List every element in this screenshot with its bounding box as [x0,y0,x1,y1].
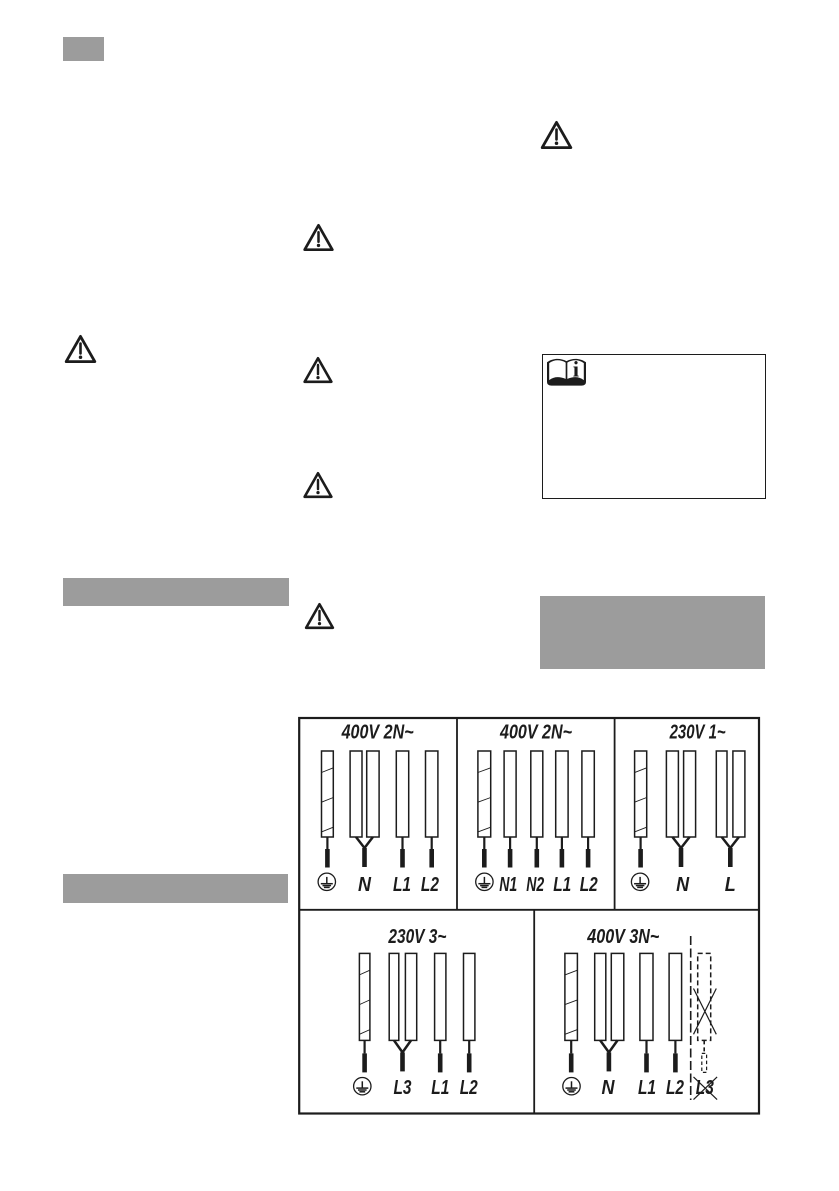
svg-text:N2: N2 [526,874,544,896]
svg-text:L: L [725,874,736,896]
svg-text:400V 2N~: 400V 2N~ [499,721,572,743]
svg-text:N: N [358,874,371,896]
svg-text:230V 3~: 230V 3~ [388,926,447,948]
svg-text:L3: L3 [394,1077,412,1099]
svg-text:L1: L1 [553,874,571,896]
svg-text:L2: L2 [580,874,598,896]
svg-text:N1: N1 [499,874,517,896]
svg-text:L1: L1 [638,1077,656,1099]
svg-text:i: i [573,357,579,382]
svg-text:400V 2N~: 400V 2N~ [341,721,414,743]
svg-text:L2: L2 [666,1077,684,1099]
svg-text:N: N [602,1077,615,1099]
svg-text:400V 3N~: 400V 3N~ [586,926,659,948]
svg-text:230V 1~: 230V 1~ [669,721,726,743]
svg-text:L2: L2 [460,1077,478,1099]
svg-text:L1: L1 [431,1077,449,1099]
svg-text:N: N [676,874,689,896]
svg-text:L2: L2 [421,874,439,896]
svg-text:L1: L1 [393,874,411,896]
